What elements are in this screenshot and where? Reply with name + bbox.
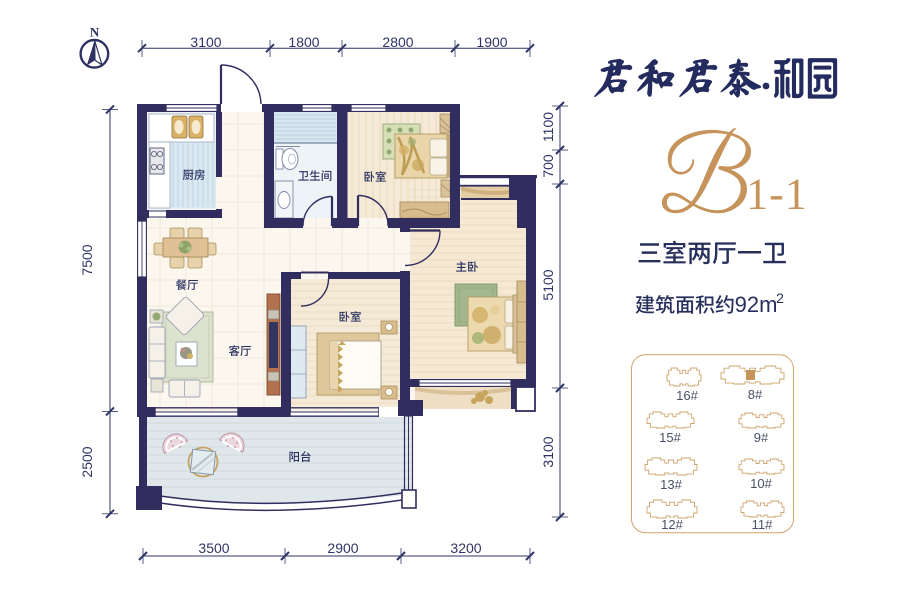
svg-text:2800: 2800 [382, 34, 413, 50]
svg-text:11#: 11# [752, 517, 773, 532]
svg-text:3100: 3100 [190, 34, 221, 50]
svg-text:2900: 2900 [327, 540, 358, 556]
svg-text:8#: 8# [748, 387, 763, 402]
svg-text:3100: 3100 [540, 436, 556, 467]
svg-text:1900: 1900 [476, 34, 507, 50]
svg-text:1100: 1100 [540, 112, 556, 142]
svg-text:1800: 1800 [288, 34, 319, 50]
svg-text:10#: 10# [750, 476, 772, 491]
svg-text:9#: 9# [754, 430, 769, 445]
svg-text:1-1: 1-1 [746, 170, 808, 219]
svg-text:3200: 3200 [450, 540, 481, 556]
svg-text:2500: 2500 [79, 446, 95, 477]
svg-text:92m: 92m [735, 292, 778, 317]
svg-text:2: 2 [776, 290, 784, 306]
svg-text:15#: 15# [659, 430, 681, 445]
svg-text:N: N [90, 25, 100, 40]
svg-text:3500: 3500 [198, 540, 229, 556]
svg-text:16#: 16# [676, 388, 698, 403]
svg-text:700: 700 [540, 154, 556, 178]
svg-text:13#: 13# [660, 477, 682, 492]
svg-text:5100: 5100 [540, 269, 556, 300]
svg-text:7500: 7500 [79, 244, 95, 275]
svg-text:12#: 12# [661, 517, 683, 532]
